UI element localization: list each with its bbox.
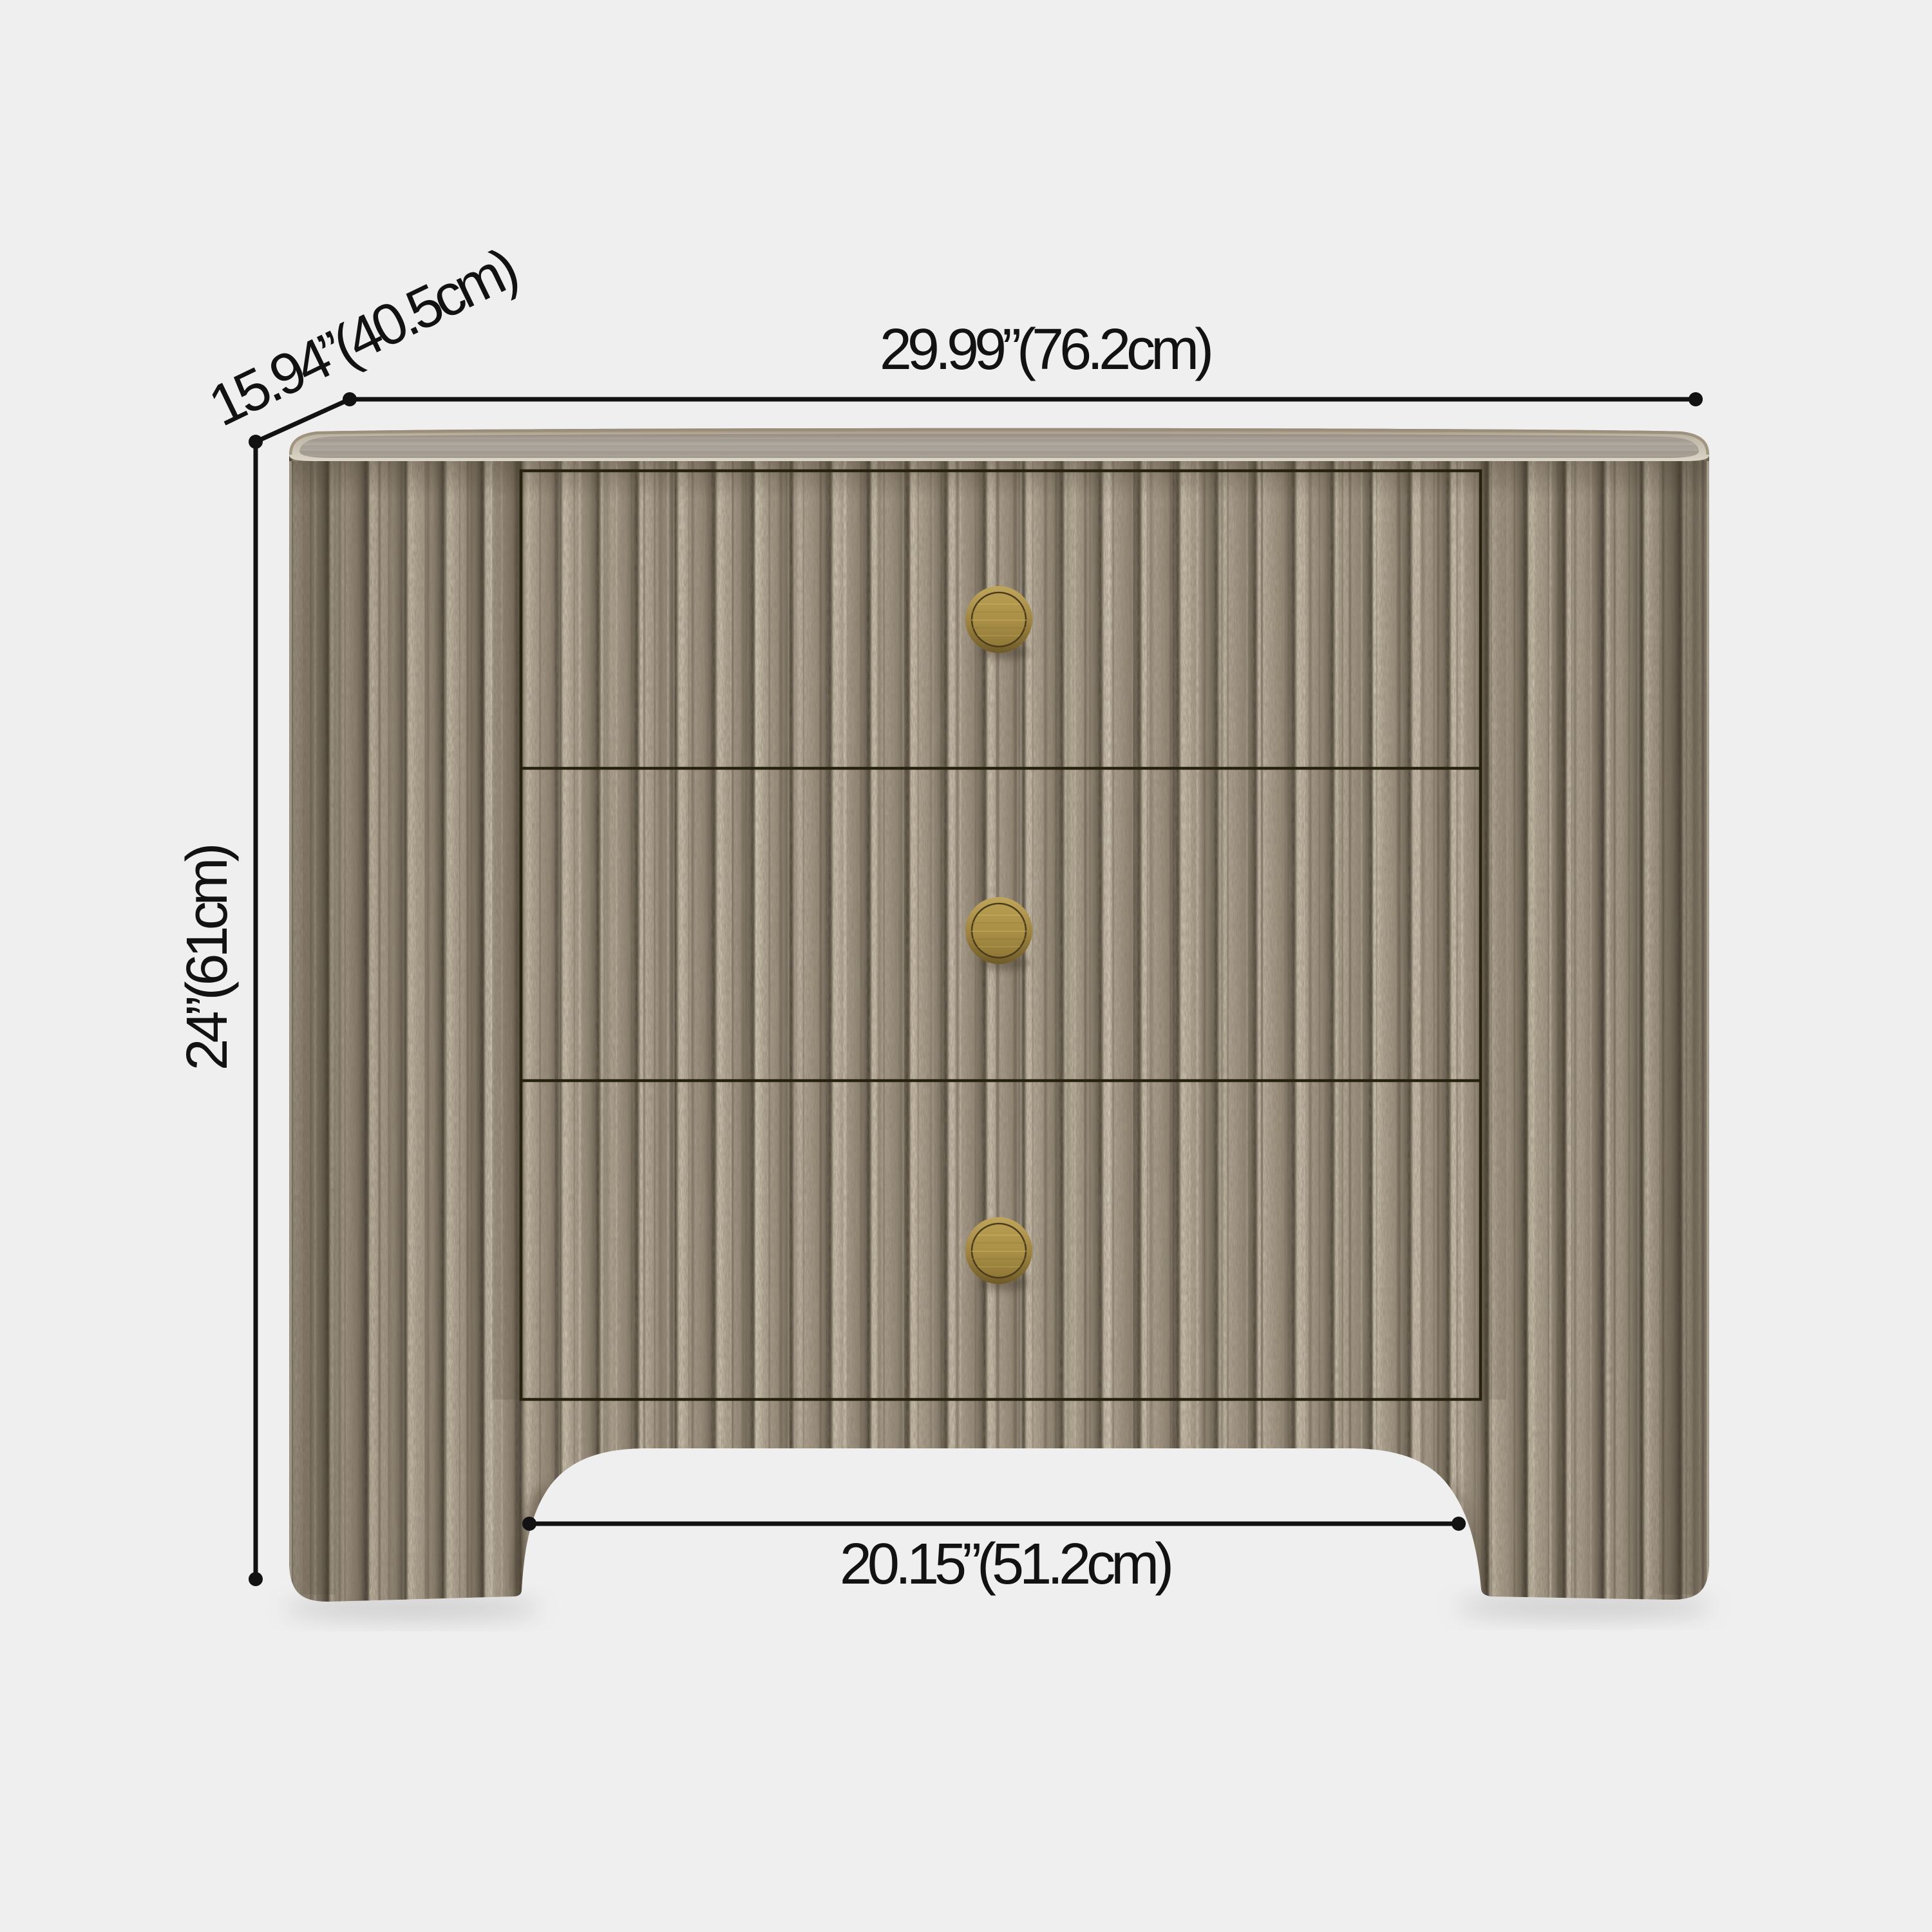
- svg-text:24”(61cm): 24”(61cm): [175, 846, 240, 1070]
- svg-text:20.15”(51.2cm): 20.15”(51.2cm): [840, 1532, 1171, 1596]
- svg-text:29.99”(76.2cm): 29.99”(76.2cm): [880, 317, 1211, 382]
